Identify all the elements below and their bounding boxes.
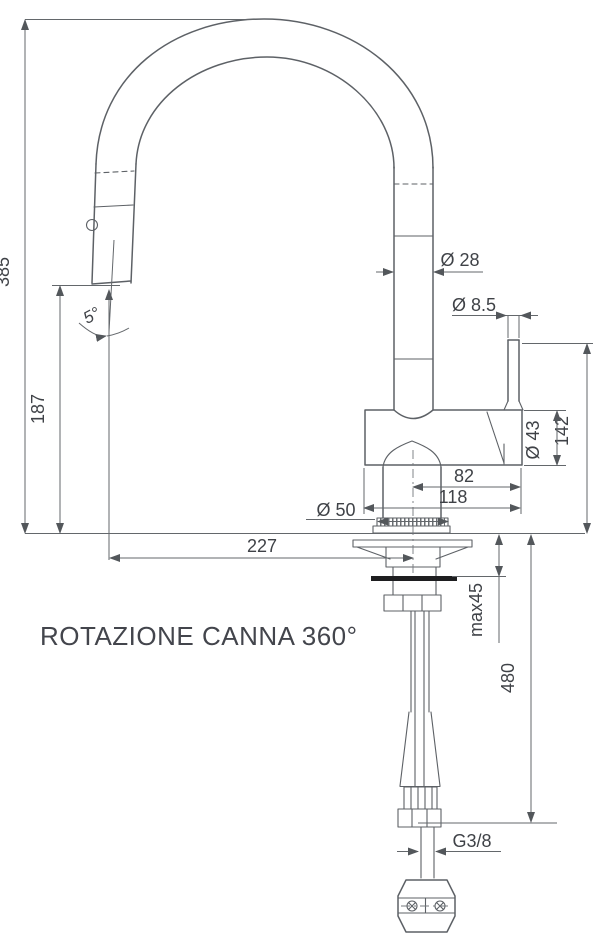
- spray-head-right-edge: [131, 164, 136, 283]
- hose-cone-right: [431, 712, 440, 786]
- spray-head: [87, 164, 137, 284]
- dim-82-label: 82: [454, 466, 474, 486]
- spray-head-left-edge: [92, 164, 96, 283]
- angle-arc-right: [107, 328, 129, 336]
- dim-385-label: 385: [0, 257, 13, 287]
- connection-nut: [398, 809, 441, 827]
- mixer-body: [365, 410, 522, 465]
- angle-label: 5°: [80, 303, 103, 328]
- spout-arc-inner: [136, 57, 394, 168]
- spout-arc-outer: [96, 19, 433, 168]
- lever-flare-left: [504, 401, 508, 410]
- spray-head-joint-dashed: [95, 171, 134, 173]
- escutcheon: [373, 518, 450, 533]
- lever-rod: [504, 340, 523, 410]
- lever-flare-right: [519, 401, 523, 410]
- flexible-hose: [400, 611, 440, 787]
- dim-g38-label: G3/8: [452, 831, 491, 851]
- bracket-wing-left: [357, 547, 390, 559]
- bracket-wing-right: [436, 547, 468, 559]
- counterweight: [398, 880, 455, 932]
- dim-118-label: 118: [439, 487, 468, 507]
- dim-480-label: 480: [498, 663, 518, 693]
- technical-drawing-page: 385 187 5° 227 Ø 28 Ø 8.5 142 Ø 43: [0, 0, 600, 942]
- faucet-dimension-drawing: 385 187 5° 227 Ø 28 Ø 8.5 142 Ø 43: [0, 0, 600, 942]
- dim-o85-label: Ø 8.5: [452, 295, 496, 315]
- dim-142-label: 142: [552, 416, 572, 446]
- spray-button: [87, 220, 98, 231]
- spray-head-joint: [94, 205, 133, 207]
- rubber-gasket: [371, 576, 457, 581]
- dim-o28-label: Ø 28: [440, 250, 479, 270]
- mounting-nut: [384, 595, 441, 611]
- escutcheon-lower-ring: [373, 526, 450, 533]
- dim-max45-label: max45: [466, 583, 486, 637]
- hose-end-fitting: [398, 787, 441, 878]
- mounting-hardware: [353, 540, 472, 611]
- rotation-note: ROTAZIONE CANNA 360°: [40, 621, 358, 651]
- dimensions: 385 187 5° 227 Ø 28 Ø 8.5 142 Ø 43: [0, 20, 593, 852]
- body-cap-diagonal: [487, 412, 504, 463]
- hose-cone-left: [400, 712, 409, 786]
- mounting-bracket-bar: [353, 540, 472, 547]
- body-dome: [383, 441, 441, 467]
- dim-o50-label: Ø 50: [316, 500, 355, 520]
- dim-187-label: 187: [28, 394, 48, 424]
- dim-227-label: 227: [247, 536, 277, 556]
- dim-o43-label: Ø 43: [523, 420, 543, 459]
